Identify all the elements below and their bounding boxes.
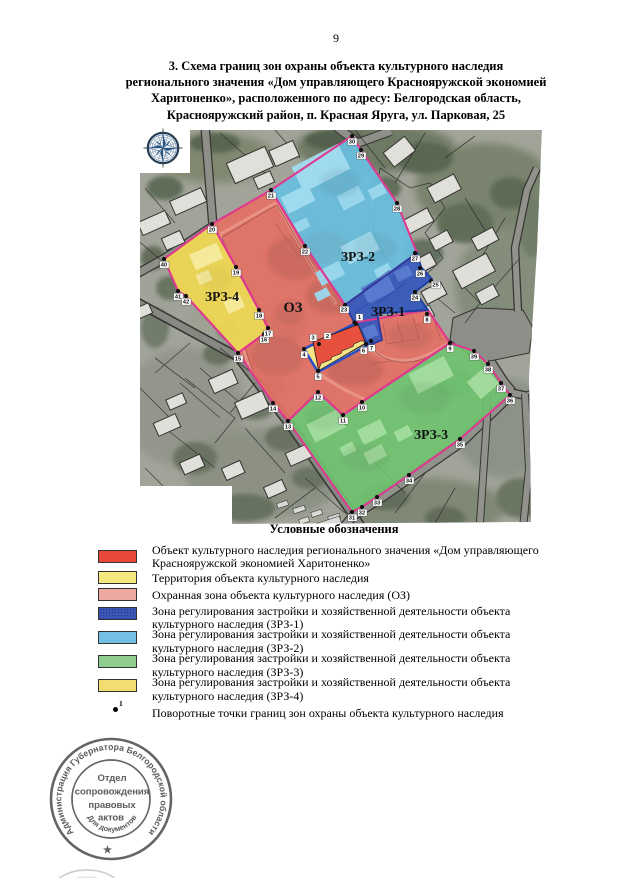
svg-text:27: 27 xyxy=(412,257,418,263)
svg-text:22: 22 xyxy=(302,250,308,256)
svg-text:37: 37 xyxy=(498,387,504,393)
svg-text:★: ★ xyxy=(103,845,112,856)
svg-text:15: 15 xyxy=(235,357,242,363)
svg-text:31: 31 xyxy=(349,516,356,522)
svg-text:33: 33 xyxy=(374,501,381,507)
svg-text:ЗРЗ-1: ЗРЗ-1 xyxy=(371,304,405,319)
svg-text:Отдел: Отдел xyxy=(97,773,126,784)
svg-text:правовых: правовых xyxy=(88,800,136,811)
svg-text:25: 25 xyxy=(432,283,439,289)
svg-text:ОЗ: ОЗ xyxy=(284,300,303,316)
svg-text:20: 20 xyxy=(209,228,215,234)
svg-text:сопровождения: сопровождения xyxy=(75,787,149,798)
svg-text:28: 28 xyxy=(394,207,401,213)
svg-text:42: 42 xyxy=(183,300,189,306)
svg-text:30: 30 xyxy=(349,140,355,146)
svg-text:24: 24 xyxy=(412,296,419,302)
svg-text:34: 34 xyxy=(406,479,413,485)
svg-text:38: 38 xyxy=(485,368,492,374)
svg-text:ЗРЗ-3: ЗРЗ-3 xyxy=(414,427,448,442)
svg-text:35: 35 xyxy=(457,443,464,449)
svg-text:26: 26 xyxy=(417,272,424,278)
svg-text:40: 40 xyxy=(161,263,167,269)
svg-text:29: 29 xyxy=(358,154,365,160)
svg-text:32: 32 xyxy=(359,511,365,517)
svg-text:11: 11 xyxy=(340,419,347,425)
svg-text:23: 23 xyxy=(341,308,348,314)
svg-text:16: 16 xyxy=(261,338,268,344)
svg-text:39: 39 xyxy=(471,355,478,361)
svg-text:10: 10 xyxy=(359,406,365,412)
svg-text:2: 2 xyxy=(326,334,329,340)
svg-text:ЗРЗ-4: ЗРЗ-4 xyxy=(205,289,239,304)
svg-text:12: 12 xyxy=(315,396,321,402)
svg-text:18: 18 xyxy=(256,314,263,320)
svg-text:17: 17 xyxy=(265,332,271,338)
svg-text:19: 19 xyxy=(233,271,240,277)
svg-text:7: 7 xyxy=(370,346,373,352)
svg-text:актов: актов xyxy=(98,813,124,824)
svg-text:41: 41 xyxy=(175,295,182,301)
svg-text:21: 21 xyxy=(268,194,275,200)
svg-text:36: 36 xyxy=(507,399,514,405)
svg-text:13: 13 xyxy=(285,425,292,431)
svg-text:ЗРЗ-2: ЗРЗ-2 xyxy=(341,249,375,264)
svg-text:14: 14 xyxy=(270,407,277,413)
